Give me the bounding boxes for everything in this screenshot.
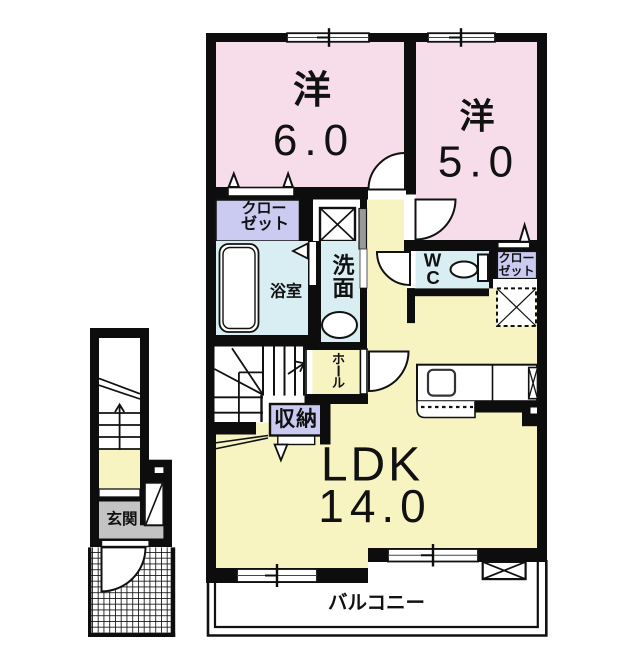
svg-text:6.0: 6.0 bbox=[273, 116, 355, 165]
svg-text:洗: 洗 bbox=[332, 253, 354, 278]
svg-text:玄関: 玄関 bbox=[106, 509, 137, 528]
svg-text:バルコニー: バルコニー bbox=[328, 592, 425, 614]
svg-text:面: 面 bbox=[332, 276, 354, 301]
svg-text:ゼット: ゼット bbox=[498, 263, 534, 278]
svg-text:C: C bbox=[426, 267, 439, 288]
svg-text:収納: 収納 bbox=[274, 407, 318, 431]
svg-text:5.0: 5.0 bbox=[438, 138, 520, 187]
svg-text:ホ: ホ bbox=[332, 352, 345, 367]
svg-text:洋: 洋 bbox=[293, 70, 331, 112]
svg-text:クロー: クロー bbox=[241, 200, 286, 217]
svg-text:ゼット: ゼット bbox=[241, 214, 289, 233]
svg-text:浴室: 浴室 bbox=[270, 282, 302, 301]
svg-text:洋: 洋 bbox=[459, 98, 494, 137]
svg-text:14.0: 14.0 bbox=[318, 480, 432, 532]
svg-text:クロー: クロー bbox=[498, 251, 534, 265]
svg-text:ル: ル bbox=[332, 376, 345, 391]
